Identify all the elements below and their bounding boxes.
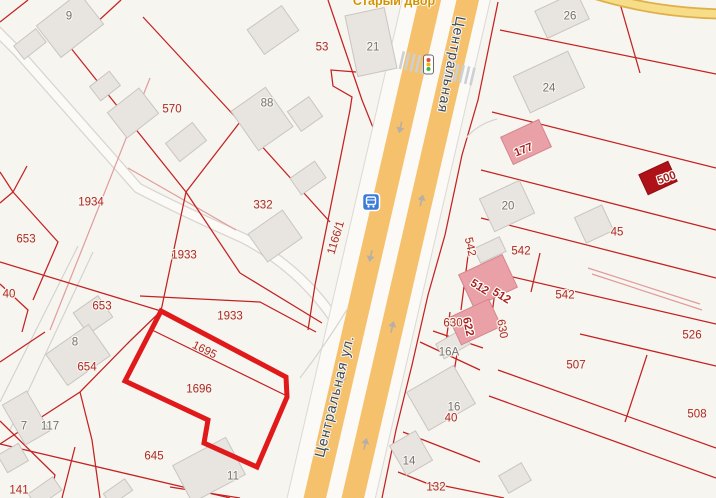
house-label-21[interactable]: 21 [367,42,380,54]
parcel-label-332[interactable]: 332 [253,200,272,212]
house-label-24[interactable]: 24 [543,83,556,95]
house-label-11[interactable]: 11 [227,471,239,483]
parcel-label-653-2[interactable]: 653 [92,301,111,313]
map-canvas[interactable]: 9 570 53 21 88 26 24 177 500 1934 653 19… [0,0,716,498]
house-label-16a[interactable]: 16А [439,347,459,359]
parcel-label-526[interactable]: 526 [682,330,701,342]
house-label-9[interactable]: 9 [66,11,72,23]
parcel-label-40-2[interactable]: 40 [445,413,458,425]
house-label-88[interactable]: 88 [261,98,274,110]
parcel-label-542-2[interactable]: 542 [511,246,530,258]
parcel-label-508[interactable]: 508 [687,409,706,421]
parcel-label-1696[interactable]: 1696 [186,384,212,396]
yellow-road [594,0,716,14]
parcel-label-53[interactable]: 53 [316,42,329,54]
parcel-label-653[interactable]: 653 [16,234,35,246]
parcel-label-141[interactable]: 141 [9,485,28,497]
parcel-label-40[interactable]: 40 [3,289,16,301]
parcel-label-1933[interactable]: 1933 [171,250,197,262]
house-label-117[interactable]: 117 [41,421,59,433]
map-graphics [0,0,716,498]
parcel-label-45[interactable]: 45 [611,227,624,239]
parcel-label-132[interactable]: 132 [426,482,445,494]
house-label-20[interactable]: 20 [502,201,515,213]
house-label-7[interactable]: 7 [21,421,27,433]
house-label-8[interactable]: 8 [72,337,78,349]
parcel-label-1934[interactable]: 1934 [78,197,104,209]
house-label-14[interactable]: 14 [403,456,416,468]
bus-stop-icon[interactable] [363,194,380,211]
parcel-label-645[interactable]: 645 [144,451,163,463]
traffic-light-icon [424,55,434,74]
house-label-26[interactable]: 26 [564,11,577,23]
curb-arc-east [466,119,497,138]
parcel-label-630-2[interactable]: 630 [494,319,509,340]
parcel-label-542-3[interactable]: 542 [555,290,574,302]
parcel-label-654[interactable]: 654 [77,362,96,374]
side-lane [0,28,352,430]
poi-label-stary-dvor[interactable]: Старый двор [353,0,435,7]
parcel-label-1933-2[interactable]: 1933 [217,311,243,323]
parcel-label-507[interactable]: 507 [566,360,585,372]
parcel-label-570[interactable]: 570 [162,104,181,116]
